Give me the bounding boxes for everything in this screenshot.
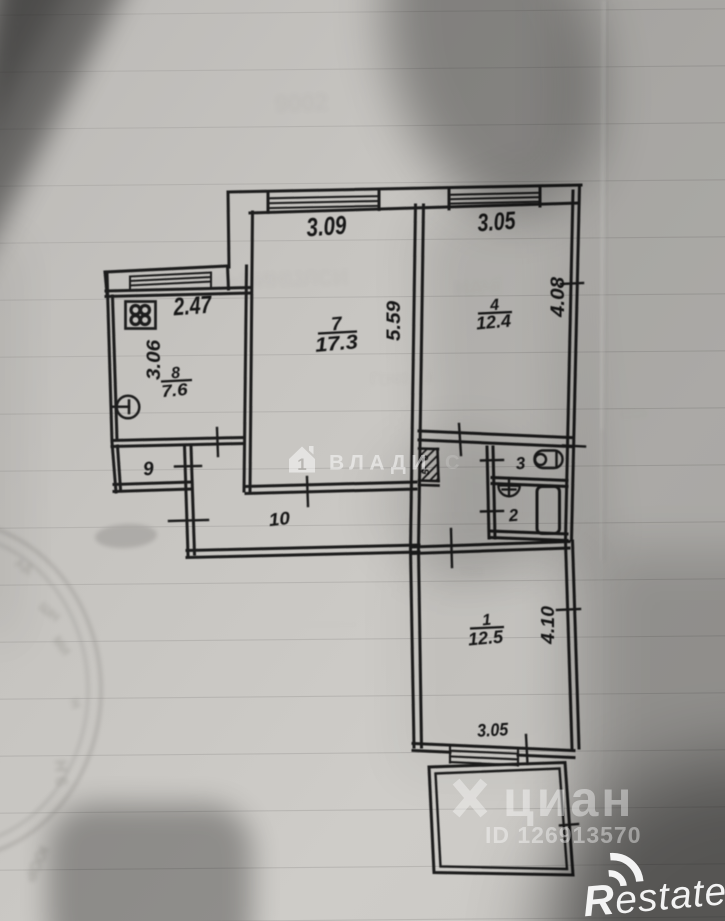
svg-text:9002: 9002 bbox=[274, 89, 328, 118]
svg-text:циан: циан bbox=[503, 771, 634, 827]
svg-text:17.3: 17.3 bbox=[314, 331, 359, 357]
svg-text:Н 6: Н 6 bbox=[51, 759, 71, 786]
svg-text:3.06: 3.06 bbox=[144, 340, 165, 380]
svg-text:————: ———— bbox=[300, 615, 356, 631]
svg-text:R: R bbox=[581, 876, 616, 921]
svg-text:10: 10 bbox=[268, 508, 291, 530]
svg-text:estate: estate bbox=[613, 870, 725, 921]
svg-text:ВЛАДИ: ВЛАДИ bbox=[329, 452, 432, 475]
svg-text:3.09: 3.09 bbox=[305, 210, 347, 243]
svg-text:1: 1 bbox=[297, 455, 306, 474]
svg-text:С: С bbox=[445, 452, 459, 474]
svg-text:7.6: 7.6 bbox=[161, 380, 189, 401]
svg-text:ID 126913570: ID 126913570 bbox=[485, 822, 642, 848]
svg-text:5.59: 5.59 bbox=[384, 301, 405, 341]
svg-text:2.47: 2.47 bbox=[172, 291, 213, 322]
svg-text:Гочт…і: Гочт…і bbox=[369, 367, 432, 389]
